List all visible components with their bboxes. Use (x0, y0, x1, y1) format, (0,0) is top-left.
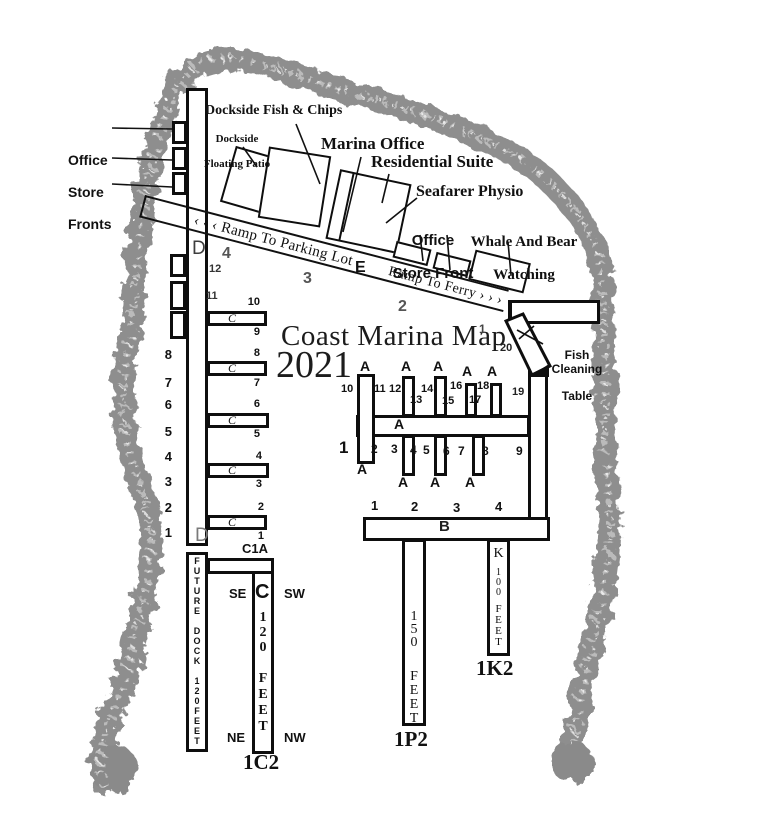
a-letter-bottom-4: A (465, 475, 475, 491)
office-store-fronts-line3: Fronts (68, 216, 112, 232)
a-slip-2: 2 (371, 443, 378, 456)
whale-watching-label: Whale And Bear Watching (468, 217, 580, 301)
seafarer-physio-label: Seafarer Physio (416, 183, 523, 201)
a-slip-11: 11 (374, 383, 386, 395)
fish-cleaning-line2: Table (538, 390, 616, 403)
ramp-slip-2: 2 (398, 298, 407, 316)
ramp-slip-3: 3 (303, 270, 312, 288)
d-slip-5: 5 (158, 425, 172, 440)
c-finger-letter-2: C (228, 362, 236, 375)
a-letter-top-2: A (401, 359, 411, 375)
fish-cleaning-table-label: Fish Cleaning Table (538, 336, 616, 417)
a-slip-9: 9 (516, 445, 523, 458)
store-front-box-1 (172, 121, 187, 144)
office-store-front-label: Office Store Front (390, 216, 476, 300)
dock-c-finger-3 (207, 413, 269, 428)
d-slip-7: 7 (158, 376, 172, 391)
c-corner-se: SE (229, 587, 246, 602)
b-slip-3: 3 (453, 501, 460, 516)
a-letter-top-4: A (462, 364, 472, 380)
dock-c-finger-5 (207, 515, 267, 530)
osf-line1: Office (390, 233, 476, 250)
office-store-fronts-line2: Store (68, 184, 112, 200)
dock-c-letter: C (255, 581, 269, 603)
a-slip-16: 16 (450, 380, 462, 392)
patio-line2: Floating Patio (196, 158, 278, 170)
patio-line1: Dockside (196, 133, 278, 145)
a-slip-13: 13 (410, 394, 422, 406)
p-tag: 1P2 (394, 728, 428, 752)
fish-cleaning-line1: Fish Cleaning (538, 349, 616, 376)
store-front-box-4 (170, 254, 186, 277)
dock-b-label: B (439, 519, 450, 536)
store-front-box-6 (170, 311, 186, 339)
k-tag: 1K2 (476, 657, 513, 681)
c-finger-letter-4: C (228, 464, 236, 477)
c-corner-ne: NE (227, 731, 245, 746)
a-slip-14: 14 (421, 383, 433, 395)
c-finger-letter-1: C (228, 312, 236, 325)
shoreline (0, 0, 783, 825)
marina-map: { "title": { "text": "Coast Marina Map",… (0, 0, 783, 825)
dock-c-finger-4 (207, 463, 269, 478)
dock-a-top-finger-5 (490, 383, 502, 417)
ramp-slip-19: 19 (512, 386, 524, 398)
store-front-box-2 (172, 147, 187, 170)
a-slip-18: 18 (477, 380, 489, 392)
dockside-fish-chips-label: Dockside Fish & Chips (205, 103, 342, 119)
a-slip-1: 1 (339, 438, 348, 457)
dock-c-finger-1 (207, 311, 267, 326)
a-slip-10: 10 (341, 383, 353, 395)
ramp-slip-1: 1 (479, 323, 486, 336)
residential-suite-label: Residential Suite (371, 152, 493, 171)
c-slip-2: 2 (244, 501, 264, 513)
dockside-floating-patio-label: Dockside Floating Patio (196, 121, 278, 183)
a-slip-17: 17 (469, 394, 481, 406)
a-slip-3: 3 (391, 443, 398, 456)
marina-office-label: Marina Office (321, 134, 424, 153)
dock-c-finger-2 (207, 361, 267, 376)
office-store-fronts-line1: Office (68, 152, 112, 168)
fairway-11: 11 (206, 290, 218, 302)
map-year: 2021 (276, 344, 352, 387)
p-feet: F E E T (403, 670, 425, 726)
a-letter-top-1: A (360, 359, 370, 375)
dock-20-diagonal (0, 0, 783, 825)
a-letter-bottom-1: A (357, 462, 367, 478)
c-slip-9: 9 (240, 326, 260, 338)
c-slip-6: 6 (240, 398, 260, 410)
whale-line2: Watching (468, 267, 580, 284)
c-slip-7: 7 (240, 377, 260, 389)
a-main-letter: A (394, 417, 404, 433)
d-slip-6: 6 (158, 398, 172, 413)
c-corner-sw: SW (284, 587, 305, 602)
dock-a-main (356, 415, 530, 437)
d-slip-2: 2 (158, 501, 172, 516)
p-length: 1 5 0 (403, 610, 425, 649)
future-dock-text: F U T U R E D O C K 1 2 0 F E E T (189, 556, 205, 746)
dock-e-label: E (355, 259, 366, 277)
ferry-pier (508, 300, 600, 324)
ramp-slip-20: 20 (500, 342, 512, 354)
c-finger-letter-3: C (228, 414, 236, 427)
b-slip-4: 4 (495, 500, 502, 515)
k-length: 1 0 0 (488, 568, 509, 598)
office-store-fronts-label: Office Store Fronts (68, 136, 112, 248)
d-slip-8: 8 (158, 348, 172, 363)
fairway-12: 12 (209, 263, 221, 275)
c-slip-5: 5 (240, 428, 260, 440)
a-slip-12: 12 (389, 383, 401, 395)
c-slip-3: 3 (242, 478, 262, 490)
a-letter-top-3: A (433, 359, 443, 375)
c-tag: 1C2 (243, 751, 279, 775)
a-letter-bottom-2: A (398, 475, 408, 491)
a-letter-top-5: A (487, 364, 497, 380)
c1a-label: C1A (242, 542, 268, 557)
store-front-box-5 (170, 281, 186, 310)
c-finger-letter-5: C (228, 516, 236, 529)
b-slip-2: 2 (411, 500, 418, 515)
whale-line1: Whale And Bear (468, 234, 580, 251)
a-slip-4: 4 (410, 444, 417, 457)
d-slip-4: 4 (158, 450, 172, 465)
b-slip-1: 1 (371, 499, 378, 514)
dock-d-bottom-label: D (195, 525, 209, 546)
osf-line2: Store Front (390, 266, 476, 283)
dock-b-main (363, 517, 550, 541)
c-corner-nw: NW (284, 731, 306, 746)
a-slip-8: 8 (482, 445, 489, 458)
d-slip-3: 3 (158, 475, 172, 490)
store-front-box-3 (172, 172, 187, 195)
a-slip-7: 7 (458, 445, 465, 458)
building-divider (338, 173, 354, 241)
d-slip-1: 1 (158, 526, 172, 541)
c-slip-10: 10 (240, 296, 260, 308)
a-slip-15: 15 (442, 395, 454, 407)
dock-d-top-label: D (192, 238, 206, 259)
a-slip-6: 6 (443, 445, 450, 458)
k-feet: F E E T (488, 604, 509, 648)
dock-c1a-finger (207, 558, 274, 574)
c-length: 1 2 0 (252, 610, 274, 655)
k-letter: K (488, 546, 509, 562)
ramp-slip-4: 4 (222, 245, 231, 263)
c-slip-4: 4 (242, 450, 262, 462)
a-slip-5: 5 (423, 444, 430, 457)
pointer-lines (0, 0, 783, 825)
c-slip-8: 8 (240, 347, 260, 359)
a-letter-bottom-3: A (430, 475, 440, 491)
c-feet: F E E T (252, 671, 274, 735)
